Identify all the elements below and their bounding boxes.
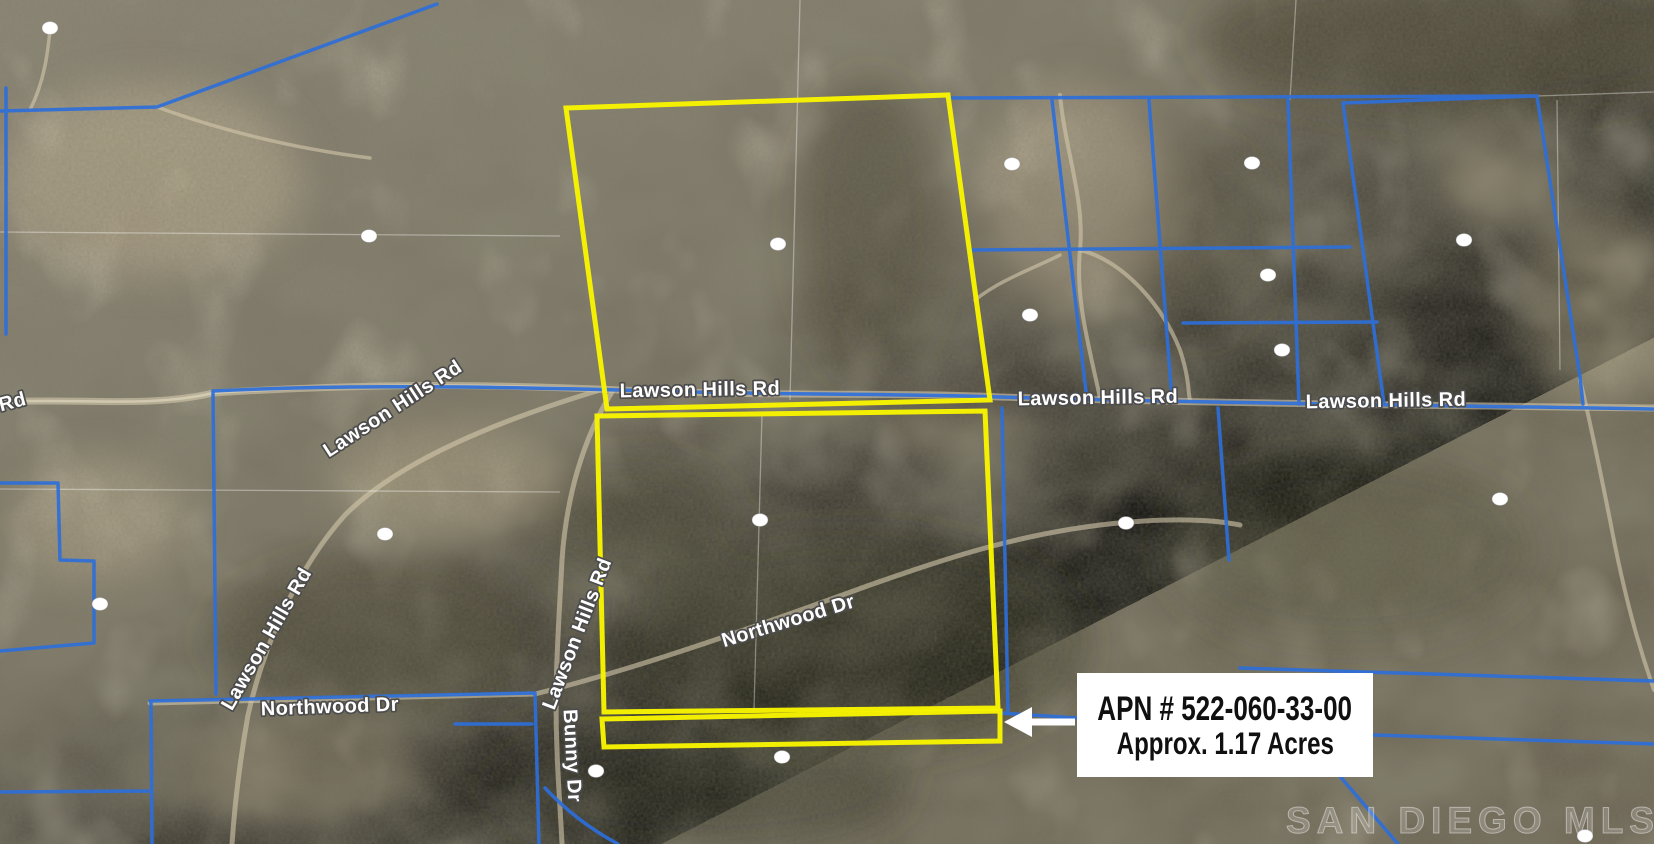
map-marker[interactable] [361, 230, 377, 243]
map-marker[interactable] [42, 22, 58, 35]
map-marker[interactable] [1022, 309, 1038, 322]
road-label: Lawson Hills Rd [619, 378, 780, 403]
map-marker[interactable] [1274, 344, 1290, 357]
road-label: Lawson Hills Rd [1305, 389, 1466, 414]
map-marker[interactable] [588, 765, 604, 778]
map-marker[interactable] [1260, 269, 1276, 282]
map-screenshot: Lawson Hills RdLawson Hills RdLawson Hil… [0, 0, 1654, 844]
apn-callout: APN # 522-060-33-00 Approx. 1.17 Acres [1077, 673, 1373, 777]
map-marker[interactable] [92, 598, 108, 611]
acreage-text: Approx. 1.17 Acres [1116, 726, 1333, 762]
map-marker[interactable] [1118, 517, 1134, 530]
map-marker[interactable] [752, 514, 768, 527]
map-marker[interactable] [1244, 157, 1260, 170]
map-marker[interactable] [770, 238, 786, 251]
map-marker[interactable] [1456, 234, 1472, 247]
apn-number-text: APN # 522-060-33-00 [1098, 688, 1353, 728]
map-marker[interactable] [774, 751, 790, 764]
map-marker[interactable] [1492, 493, 1508, 506]
map-marker[interactable] [377, 528, 393, 541]
map-marker[interactable] [1004, 158, 1020, 171]
watermark: SAN DIEGO MLS [1286, 800, 1654, 841]
aerial-map[interactable]: Lawson Hills RdLawson Hills RdLawson Hil… [0, 0, 1654, 844]
road-label: Lawson Hills Rd [1017, 386, 1178, 411]
